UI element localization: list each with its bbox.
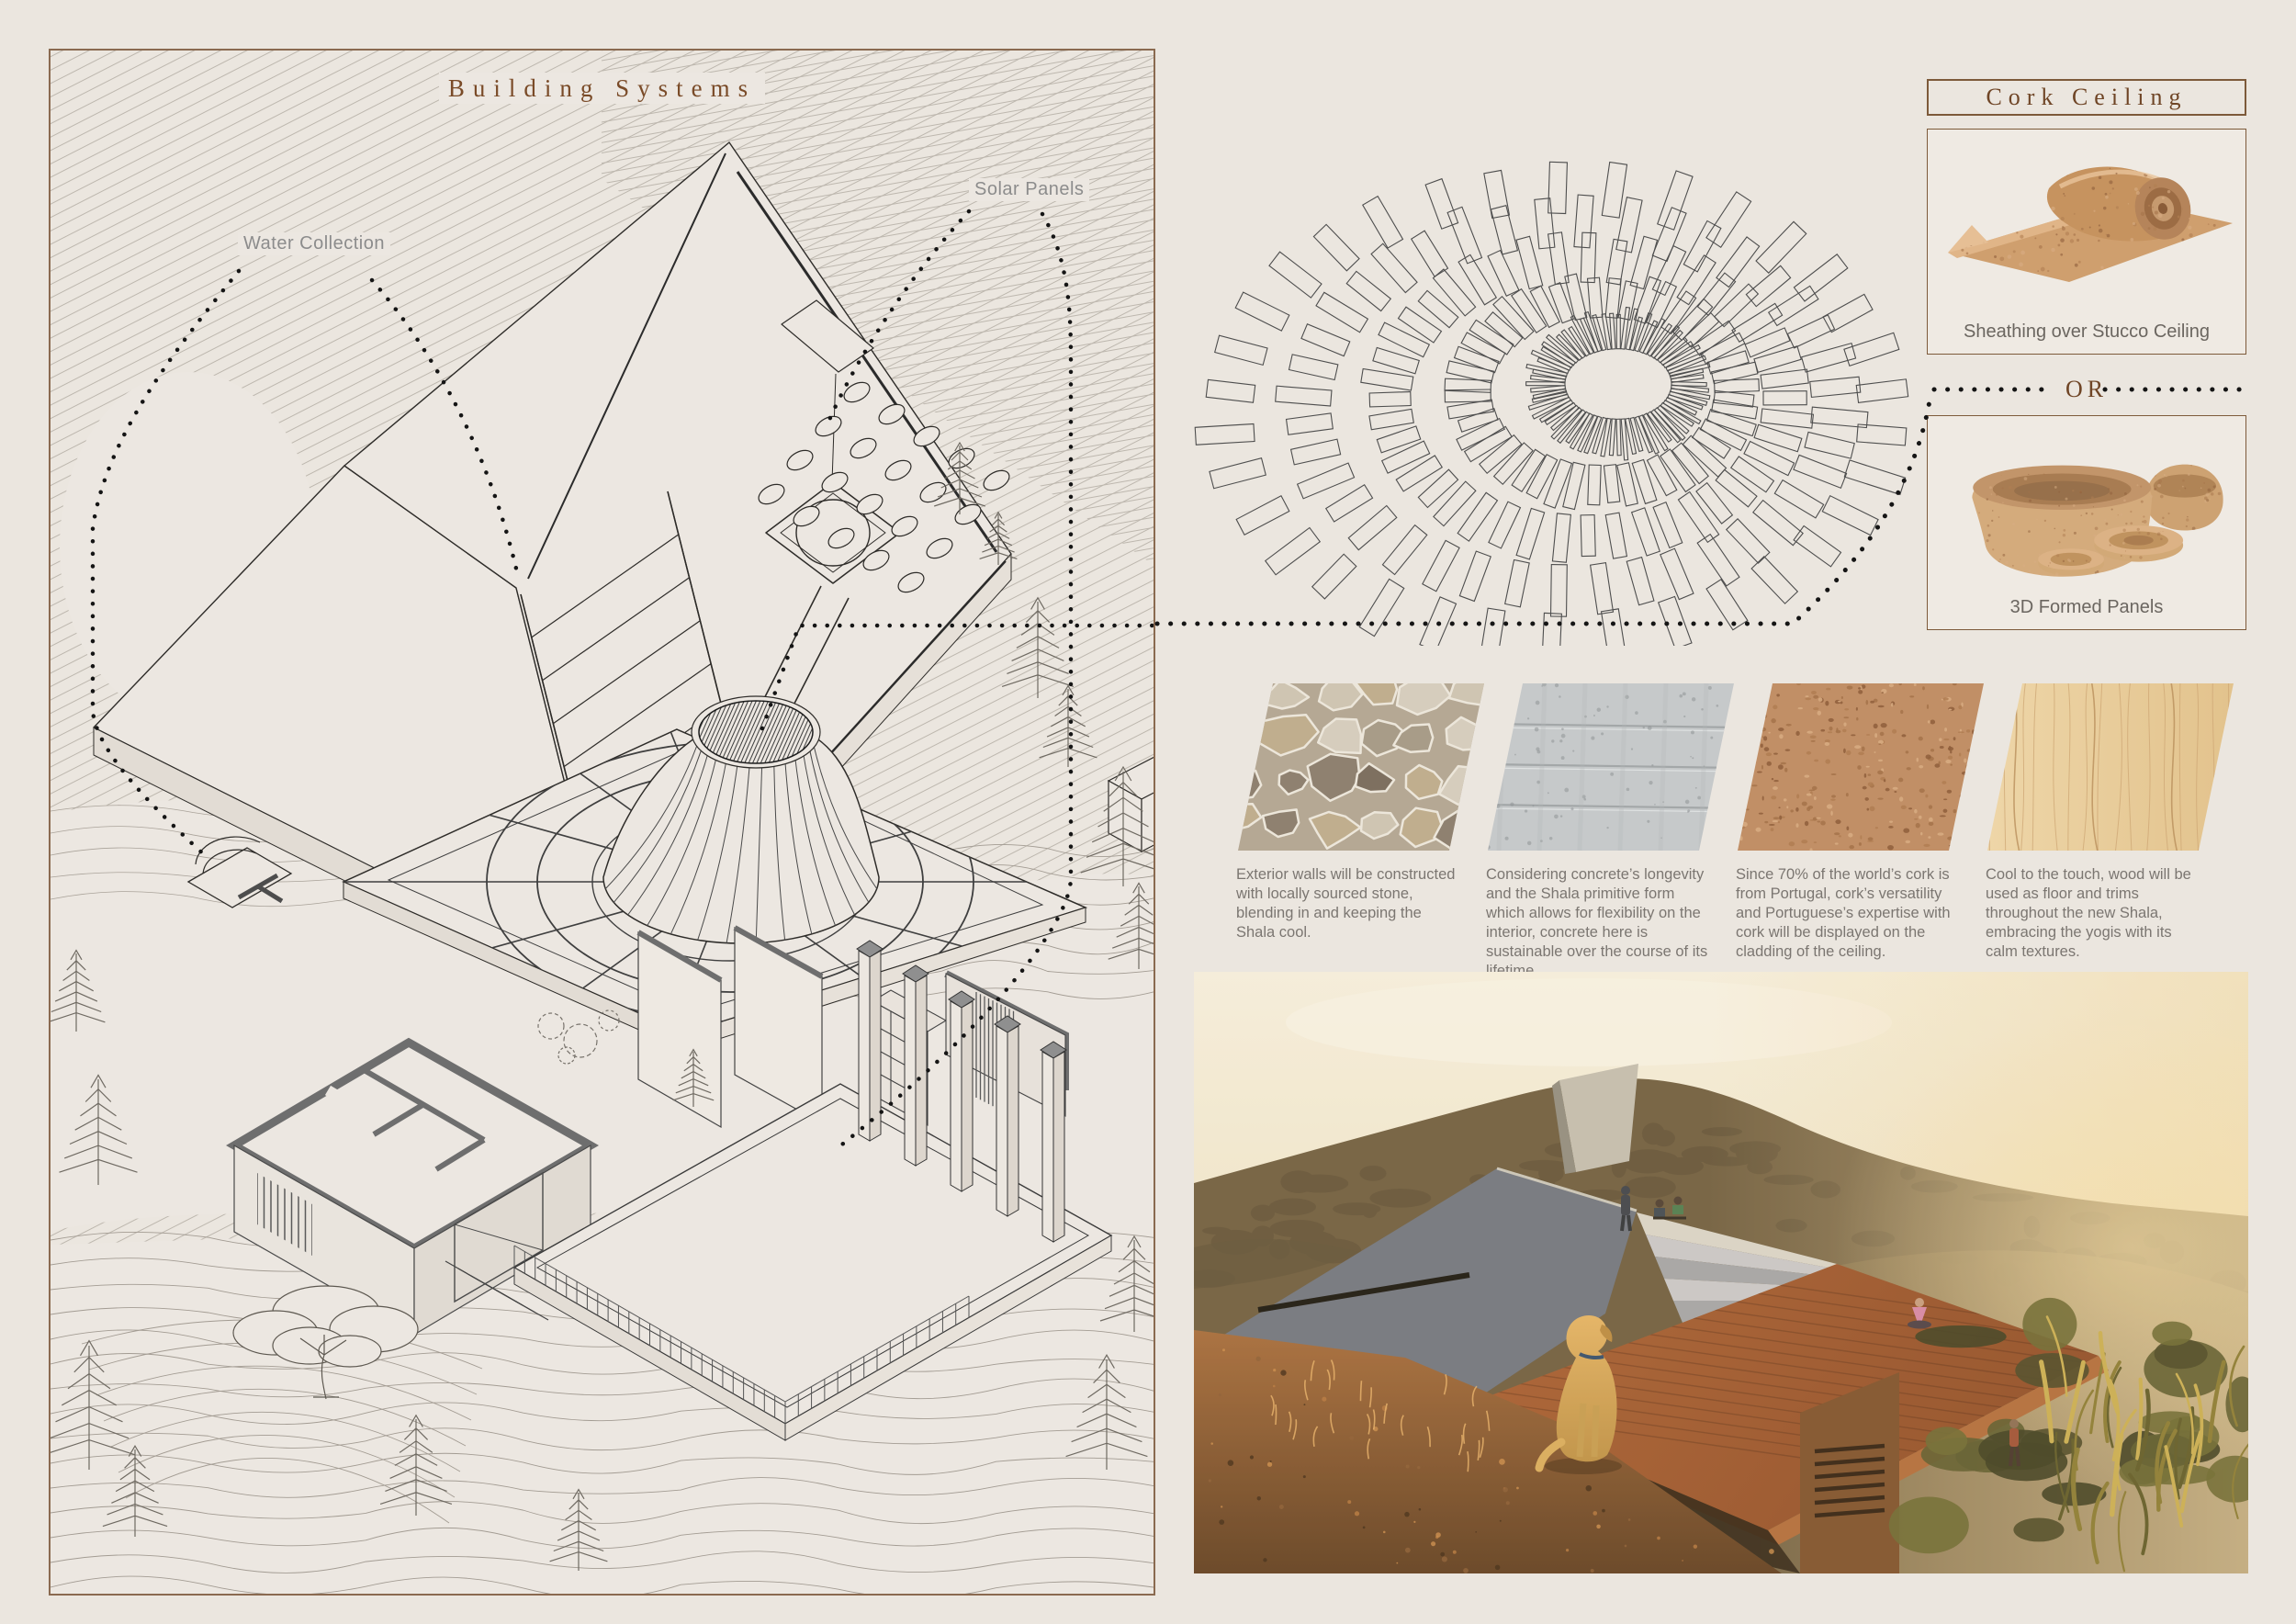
wood-swatch-image	[1986, 683, 2239, 851]
cork-roll-image	[1931, 135, 2244, 300]
cork-sheathing-figure: Sheathing over Stucco Ceiling	[1927, 129, 2246, 355]
concrete-description: Considering concrete’s longevity and the…	[1486, 865, 1708, 981]
materials-strip: Exterior walls will be constructed with …	[1236, 683, 2256, 987]
building-systems-panel: Building Systems Water Collection Solar …	[49, 49, 1155, 1596]
concrete-swatch-image	[1486, 683, 1739, 851]
funnel-skylight-opening	[699, 701, 813, 763]
water-collection-label: Water Collection	[238, 232, 390, 255]
solar-panels-label: Solar Panels	[969, 178, 1089, 201]
shala-render-photo	[1194, 972, 2248, 1573]
cork-formed-panels-caption: 3D Formed Panels	[2010, 597, 2164, 629]
cork-ceiling-title: Cork Ceiling	[1986, 84, 2187, 111]
or-label: OR	[2058, 376, 2115, 403]
panel-title: Building Systems	[51, 74, 1154, 103]
building-systems-drawing	[51, 51, 1154, 1594]
wood-description: Cool to the touch, wood will be used as …	[1986, 865, 2208, 962]
presentation-board: Building Systems Water Collection Solar …	[0, 0, 2296, 1624]
cork-formed-panels-figure: 3D Formed Panels	[1927, 415, 2246, 630]
stone-swatch-image	[1236, 683, 1490, 851]
cork-swatch-image	[1736, 683, 1989, 851]
cork-ceiling-radial-plan	[1187, 108, 1940, 646]
cork-sheathing-caption: Sheathing over Stucco Ceiling	[1964, 321, 2210, 354]
stone-description: Exterior walls will be constructed with …	[1236, 865, 1458, 942]
cork-description: Since 70% of the world’s cork is from Po…	[1736, 865, 1958, 962]
or-divider: OR	[1927, 373, 2246, 406]
cork-bowls-image	[1931, 422, 2244, 582]
cork-ceiling-title-box: Cork Ceiling	[1927, 79, 2246, 116]
